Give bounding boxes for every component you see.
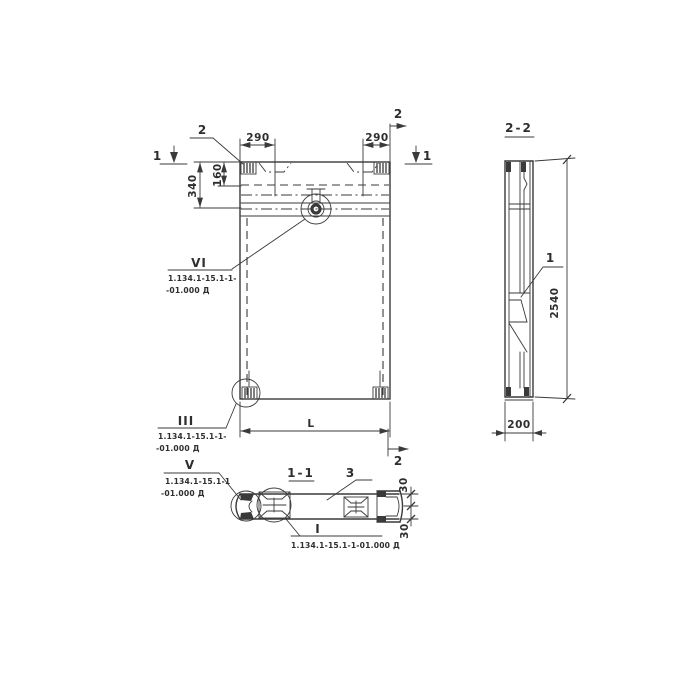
dim-290-right: 290 bbox=[365, 132, 388, 144]
dim-30-top: 30 bbox=[398, 477, 410, 493]
detail-iii-ref1: 1.134.1-15.1-1- bbox=[158, 432, 227, 441]
dim-2540: 2540 bbox=[549, 287, 561, 318]
embed-plate-bottom-left bbox=[242, 371, 257, 399]
panel-outline bbox=[240, 162, 390, 399]
panel-working-drawing: 2 290 290 2 2 1 1 bbox=[0, 0, 700, 700]
strip-right-end bbox=[377, 491, 403, 522]
detail-vi-ref1: 1.134.1-15.1-1- bbox=[168, 274, 237, 283]
callout-i: I 1.134.1-15.1-1-01.000 Д bbox=[286, 519, 400, 550]
section-2-2-view: 2-2 bbox=[492, 121, 575, 441]
callout-v: V 1.134.1-15.1-1 -01.000 Д bbox=[161, 458, 241, 500]
callout-3-label: 3 bbox=[346, 466, 354, 480]
section-1-1-body bbox=[231, 488, 403, 522]
dim-160: 160 bbox=[212, 163, 224, 186]
drawing-page: 2 290 290 2 2 1 1 bbox=[0, 0, 700, 700]
section-1-1-title: 1-1 bbox=[287, 466, 315, 480]
keyway-left bbox=[259, 492, 290, 518]
keyway-right bbox=[344, 497, 368, 517]
detail-i-label: I bbox=[315, 522, 320, 536]
dim-length: L bbox=[307, 418, 314, 430]
callout-vi: VI 1.134.1-15.1-1- -01.000 Д bbox=[166, 219, 305, 295]
dim-340: 340 bbox=[187, 174, 199, 197]
section-2-2-title: 2-2 bbox=[505, 121, 533, 135]
detail-v-ref2: -01.000 Д bbox=[161, 489, 205, 498]
embed-plate-top-right bbox=[374, 162, 389, 174]
section-mark-1-right: 1 bbox=[405, 146, 432, 164]
lifting-anchor-detail bbox=[301, 189, 331, 224]
leader-label-2: 2 bbox=[198, 123, 206, 137]
front-view-embedded-plates bbox=[241, 162, 389, 399]
svg-text:1: 1 bbox=[423, 149, 431, 163]
callout-1-label: 1 bbox=[546, 251, 554, 265]
detail-i-ref: 1.134.1-15.1-1-01.000 Д bbox=[291, 541, 400, 550]
detail-v-ref1: 1.134.1-15.1-1 bbox=[165, 477, 230, 486]
section-mark-2-bottom: 2 bbox=[394, 454, 402, 468]
detail-iii-ref2: -01.000 Д bbox=[156, 444, 200, 453]
dim-200: 200 bbox=[507, 419, 530, 431]
section-mark-2-top: 2 bbox=[394, 107, 402, 121]
section-1-1-view: 1-1 3 bbox=[231, 466, 418, 539]
svg-text:1: 1 bbox=[153, 149, 161, 163]
detail-circle-iii bbox=[232, 379, 260, 407]
front-view-panel-outline bbox=[240, 162, 390, 399]
callout-iii: III 1.134.1-15.1-1- -01.000 Д bbox=[156, 404, 236, 453]
detail-vi-label: VI bbox=[191, 256, 207, 270]
section-2-2-body bbox=[505, 161, 533, 400]
dim-30-bottom: 30 bbox=[399, 523, 411, 539]
detail-vi-ref2: -01.000 Д bbox=[166, 286, 210, 295]
section-mark-1-left: 1 bbox=[153, 146, 187, 164]
detail-iii-label: III bbox=[178, 414, 194, 428]
embed-plate-bottom-right bbox=[373, 371, 388, 399]
detail-v-label: V bbox=[185, 458, 195, 472]
dim-290-left: 290 bbox=[246, 132, 269, 144]
section-1-1-thickness-dims: 30 30 bbox=[398, 477, 418, 539]
